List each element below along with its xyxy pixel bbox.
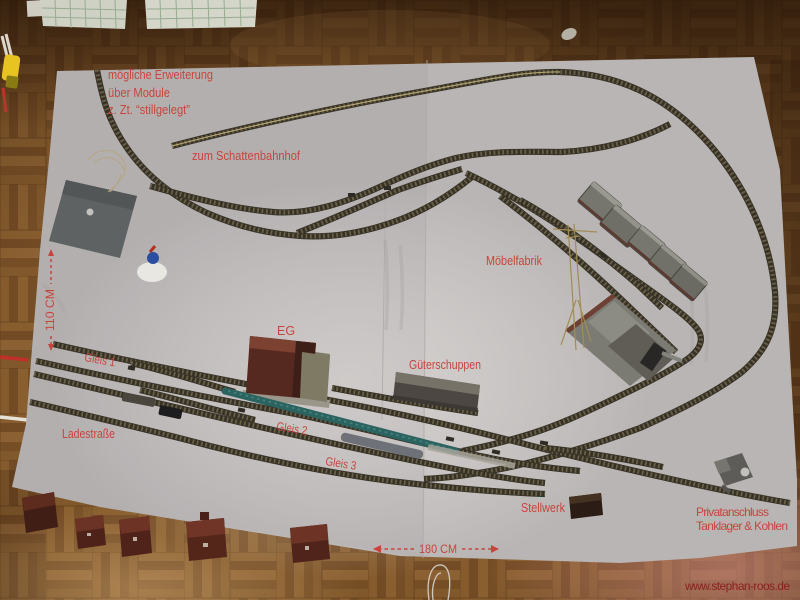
svg-text:Stellwerk: Stellwerk xyxy=(521,501,566,515)
svg-text:zum Schattenbahnhof: zum Schattenbahnhof xyxy=(192,149,300,163)
svg-text:z. Zt. “stillgelegt”: z. Zt. “stillgelegt” xyxy=(108,103,190,117)
svg-text:über Module: über Module xyxy=(108,86,170,100)
svg-text:110 CM: 110 CM xyxy=(43,289,57,331)
svg-text:Ladestraße: Ladestraße xyxy=(62,427,115,441)
svg-text:www.stephan-roos.de: www.stephan-roos.de xyxy=(684,579,790,593)
svg-text:Tanklager & Kohlen: Tanklager & Kohlen xyxy=(696,519,788,533)
svg-text:Möbelfabrik: Möbelfabrik xyxy=(486,254,543,268)
svg-text:180 CM: 180 CM xyxy=(419,542,457,556)
svg-text:mögliche Erweiterung: mögliche Erweiterung xyxy=(108,68,213,82)
svg-text:Güterschuppen: Güterschuppen xyxy=(409,358,481,372)
svg-text:Privatanschluss: Privatanschluss xyxy=(696,505,769,519)
svg-text:EG: EG xyxy=(277,324,295,338)
